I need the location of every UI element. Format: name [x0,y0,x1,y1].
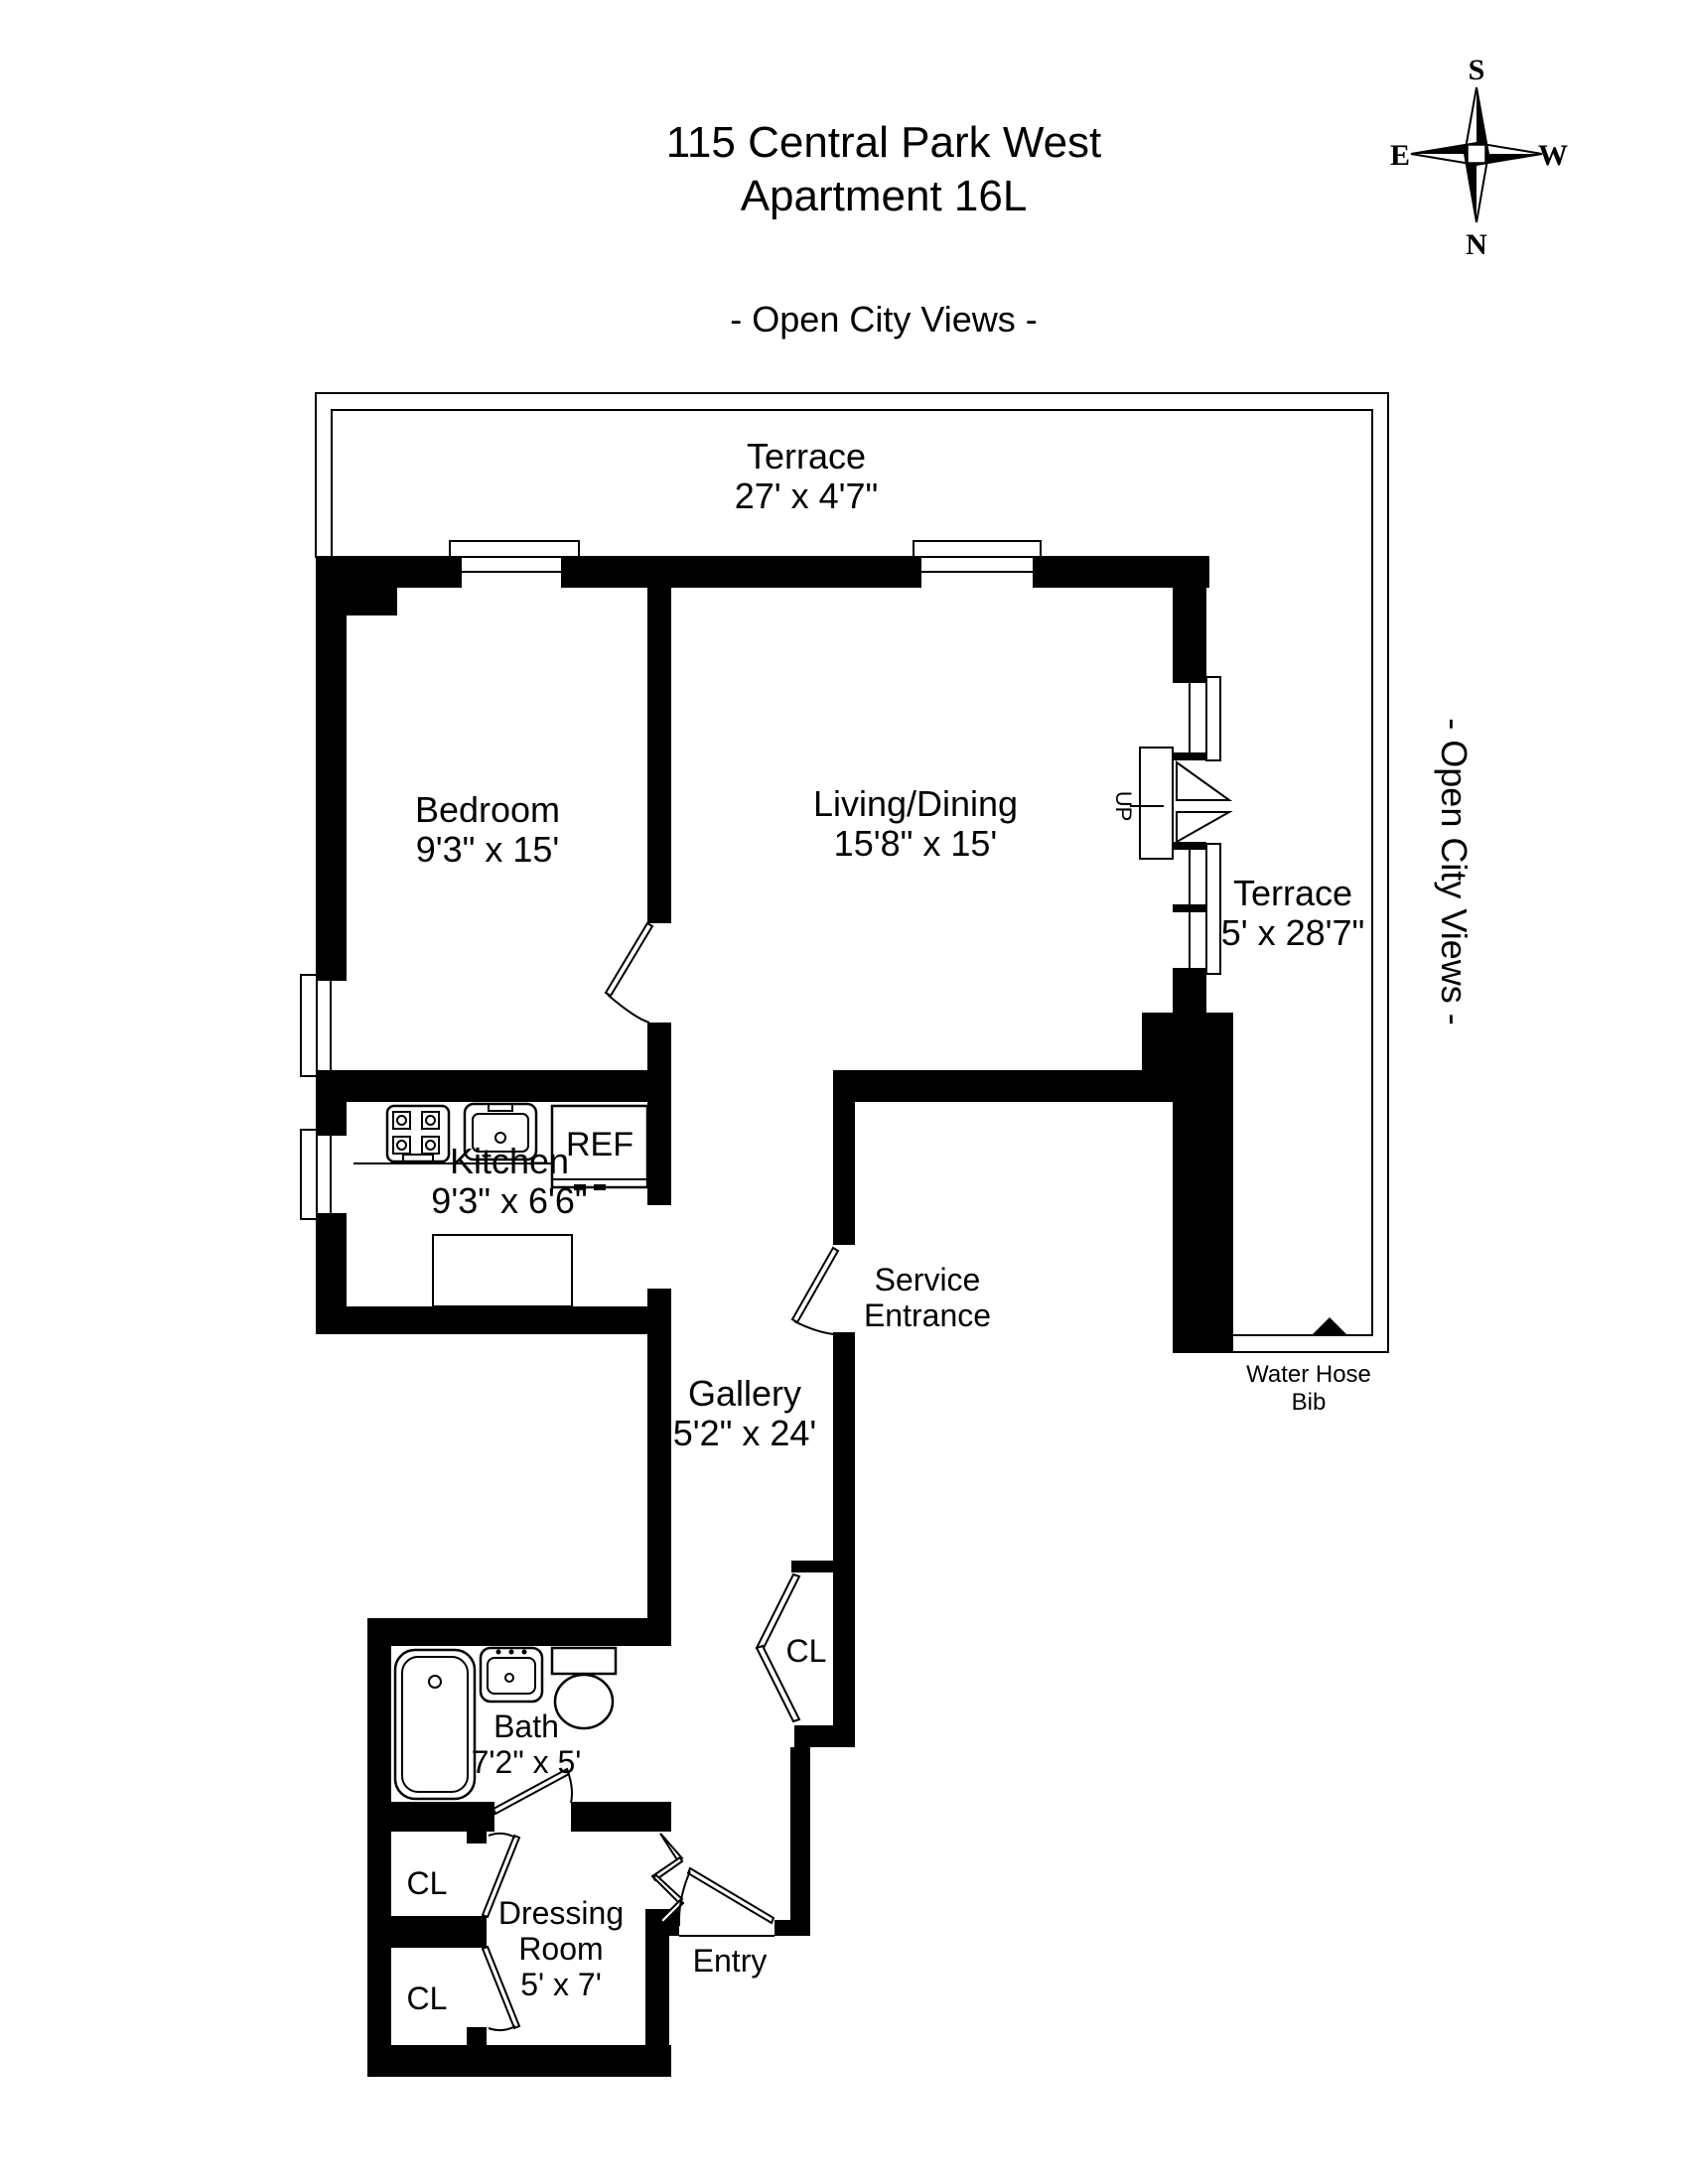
kitchen-window-left [301,1130,317,1219]
gallery-dims: 5'2" x 24' [673,1413,817,1453]
closet-lower-label: CL [407,1980,448,2016]
entry-label: Entry [693,1943,768,1979]
bedroom-window-top [450,541,579,557]
wall-segment [1142,1013,1173,1102]
toilet-tank [552,1648,616,1674]
wall-segment [790,1747,810,1920]
wall-segment [467,2027,487,2045]
up-label: UP [1111,791,1136,822]
page-title: 115 Central Park West [666,118,1102,167]
wall-segment [1173,968,1206,1070]
wall-segment [571,1802,671,1832]
entry-door-arc [679,1871,690,1926]
bedroom-dims: 9'3" x 15' [416,829,560,870]
kitchen-peninsula [433,1235,572,1306]
closet-lower-door-leaf [483,1947,519,2028]
closet-upper-door-arc [489,1834,515,1838]
kitchen-label: Kitchen [450,1141,569,1181]
service-entrance-label-1: Service [875,1262,981,1297]
wall-segment [367,1802,494,1832]
dressing-room-dims: 5' x 7' [520,1967,602,2002]
floorplan-page: 115 Central Park West Apartment 16L - Op… [0,0,1688,2184]
ref-label: REF [566,1126,633,1163]
wall-segment [1173,842,1206,850]
bathtub [395,1650,475,1799]
terrace-top-label: Terrace [747,436,866,477]
wall-segment [833,1572,855,1725]
dressing-room-label-2: Room [518,1931,603,1967]
wall-segment [367,1618,671,1646]
kitchen-dims: 9'3" x 6'6" [431,1180,587,1221]
page-subtitle: Apartment 16L [741,172,1028,220]
service-door-arc [794,1321,834,1334]
dressing-door-leaf [653,1875,682,1903]
compass-label-e: E [1390,139,1410,172]
living-window-right-lower [1206,844,1220,974]
wall-segment [647,1289,671,1618]
service-entrance-label-2: Entrance [864,1297,991,1333]
terrace-right-dims: 5' x 28'7" [1221,912,1365,953]
bath-dims: 7'2" x 5' [472,1744,582,1780]
wall-segment [1173,588,1206,683]
wall-segment [316,1306,671,1334]
stair-platform [1140,748,1173,859]
water-hose-bib-label-2: Bib [1292,1389,1327,1416]
bath-label: Bath [493,1708,559,1744]
wall-segment [647,588,671,923]
wall-segment [645,1936,669,2077]
living-dining-dims: 15'8" x 15' [834,823,998,864]
compass-label-w: W [1538,139,1568,172]
french-door-leaf [1177,812,1229,842]
bedroom-label: Bedroom [415,789,560,830]
bedroom-window-left [301,975,317,1076]
wall-segment [367,1618,391,2077]
wall-segment [1173,752,1206,760]
water-hose-bib-label-1: Water Hose [1246,1361,1371,1388]
wall-segment [467,1832,487,1843]
closet-lower-door-arc [489,2026,515,2030]
wall-segment [647,1102,671,1205]
wall-segment [367,2045,671,2077]
wall-segment [1173,904,1206,912]
floorplan-canvas: 115 Central Park West Apartment 16L - Op… [0,0,1688,2184]
wall-segment [794,1725,855,1747]
living-window-top [914,541,1041,557]
walls [316,556,1233,2077]
gallery-label: Gallery [688,1373,801,1414]
living-window-right-upper [1206,677,1220,760]
service-door-leaf [792,1248,838,1322]
living-dining-label: Living/Dining [813,783,1018,824]
wall-segment [833,1332,855,1561]
wall-segment [367,1916,487,1948]
wall-segment [791,1561,855,1572]
wall-segment [833,1070,1173,1102]
refrigerator-handle [594,1184,606,1190]
wall-segment [647,1023,671,1102]
entry-door-leaf [688,1868,774,1923]
wall-segment [316,1070,671,1102]
wall-segment [774,1920,810,1936]
open-city-views-right: - Open City Views - [1434,718,1475,1024]
wall-segment [316,556,1209,588]
water-hose-bib-marker [1312,1317,1347,1335]
compass-label-s: S [1469,54,1485,86]
terrace-right-label: Terrace [1233,873,1352,913]
open-city-views-top: - Open City Views - [730,299,1037,340]
wall-segment [316,556,347,1334]
closet-gallery-label: CL [786,1633,827,1669]
french-door-leaf [1177,762,1229,800]
bedroom-door-leaf [606,923,652,996]
compass-label-n: N [1466,228,1487,261]
dressing-room-label-1: Dressing [498,1895,624,1931]
closet-upper-label: CL [407,1865,448,1901]
toilet-bowl [555,1675,613,1728]
compass-rose: S N E W [1390,54,1568,261]
terrace-top-dims: 27' x 4'7" [735,476,879,516]
bedroom-door-arc [608,995,649,1023]
